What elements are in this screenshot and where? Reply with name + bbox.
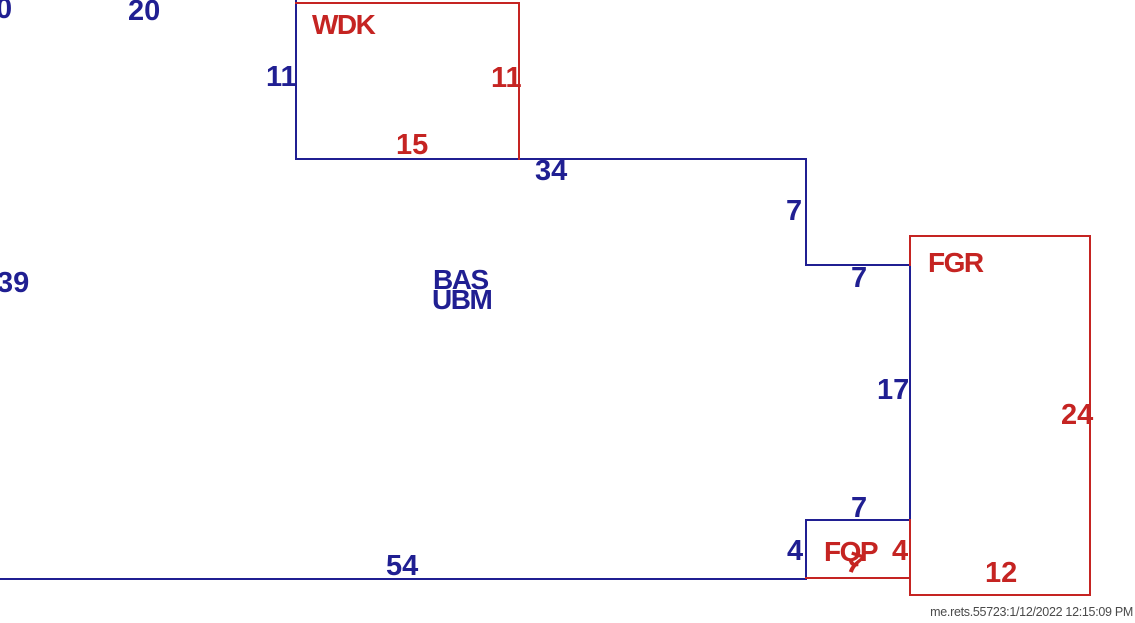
dim-top-20: 20: [128, 0, 160, 28]
dim-main-top-34: 34: [535, 156, 567, 188]
dim-left-39: 39: [0, 268, 29, 300]
fgr-left-top-wall-line: [909, 235, 911, 266]
dim-wdk-right-11: 11: [491, 63, 522, 95]
area-label-wdk: WDK: [312, 10, 374, 41]
dim-fgr-bottom-12: 12: [985, 558, 1017, 590]
area-label-fgr: FGR: [928, 248, 983, 279]
dim-fgr-left-17: 17: [877, 375, 909, 407]
dim-step-down-7: 7: [786, 196, 802, 228]
mls-watermark-text: me.rets.55723:1/12/2022 12:15:09 PM: [930, 605, 1133, 619]
step-down-wall-line: [805, 158, 807, 266]
wdk-top-wall-line: [295, 2, 520, 4]
fqp-left-wall-line: [805, 519, 807, 580]
dim-fgr-right-24: 24: [1061, 400, 1093, 432]
dim-fqp-top-7: 7: [851, 493, 867, 525]
fgr-top-wall-line: [909, 235, 1091, 237]
dim-wdk-left-11: 11: [266, 62, 297, 94]
dim-wdk-bottom-15: 15: [396, 130, 428, 162]
area-label-ubm: UBM: [432, 285, 491, 316]
floor-plan-sketch-canvas: me.rets.55723:1/12/2022 12:15:09 PM 020W…: [0, 0, 1135, 623]
dim-step-right-7: 7: [851, 263, 867, 295]
fgr-bottom-wall-line: [909, 594, 1091, 596]
fgr-left-lower-wall-line: [909, 519, 911, 596]
fgr-left-upper-wall-line: [909, 264, 911, 521]
dim-fqp-left-4: 4: [787, 536, 803, 568]
dim-fqp-right-4: 4: [892, 536, 908, 568]
dim-main-bottom-54: 54: [386, 551, 418, 583]
dim-top-left-0: 0: [0, 0, 12, 26]
